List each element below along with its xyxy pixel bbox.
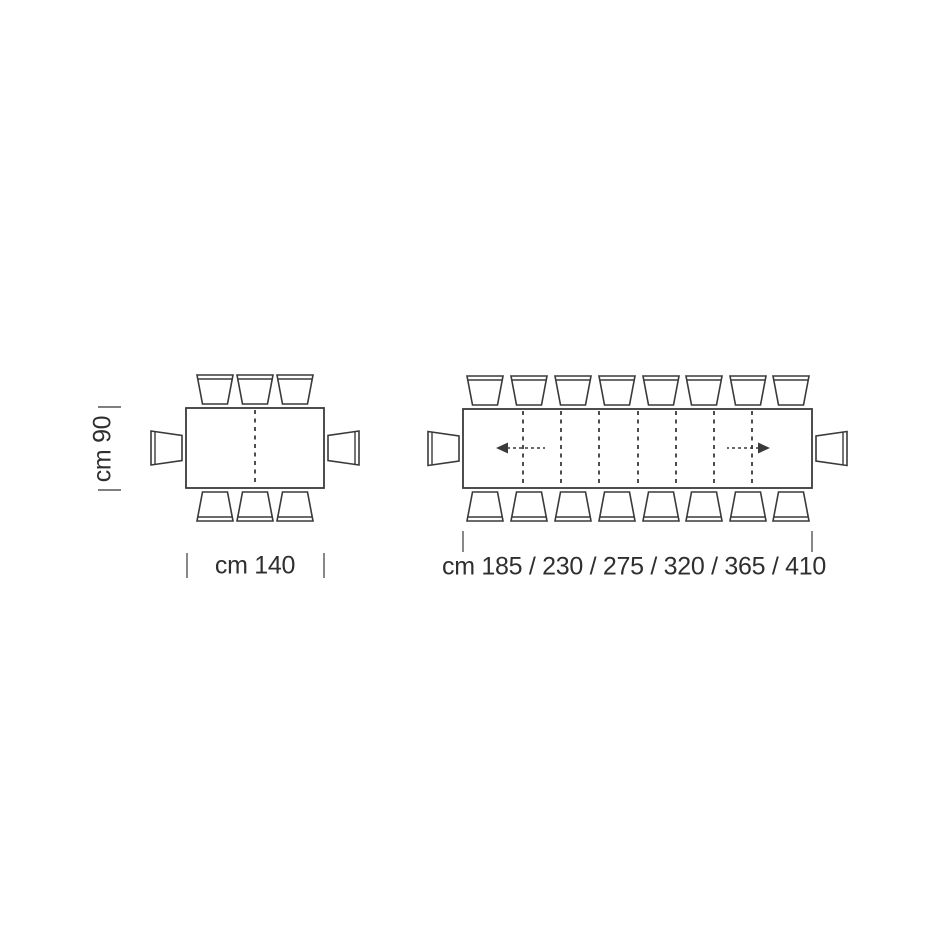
depth-dimension-label: cm 90 [89,416,118,483]
extendable-table-lengths-label: cm 185 / 230 / 275 / 320 / 365 / 410 [442,553,826,582]
fixed-table-width-label: cm 140 [215,552,295,581]
floor-plan-drawing [0,0,950,950]
table-dimension-diagram: cm 90 cm 140 cm 185 / 230 / 275 / 320 / … [0,0,950,950]
